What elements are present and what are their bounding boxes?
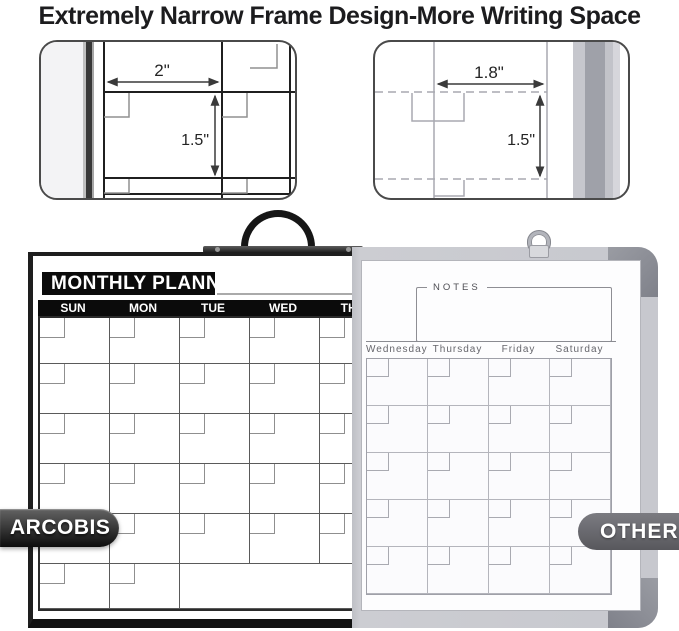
calendar-cell [40, 564, 110, 609]
date-corner-square [180, 514, 205, 534]
date-corner-square [320, 364, 345, 384]
calendar-cell [110, 564, 180, 609]
date-corner-square [489, 500, 511, 518]
date-corner-square [250, 414, 275, 434]
other-day-row: WednesdayThursdayFridaySaturday [366, 344, 610, 357]
calendar-cell [250, 514, 320, 564]
calendar-cell [428, 453, 489, 500]
date-corner-square [110, 414, 135, 434]
date-corner-square [367, 406, 389, 424]
date-corner-squares [412, 93, 464, 196]
date-corner-square [180, 414, 205, 434]
date-corner-square [40, 464, 65, 484]
date-corner-square [320, 318, 345, 338]
calendar-cell [367, 547, 428, 594]
calendar-cell [250, 464, 320, 514]
date-corner-square [110, 564, 135, 584]
handle-mount-bar [203, 246, 363, 253]
calendar-cell [180, 364, 250, 414]
date-corner-square [180, 464, 205, 484]
calendar-cell [550, 359, 611, 406]
wide-frame-band [573, 42, 620, 198]
calendar-cell [428, 359, 489, 406]
arcobis-closeup-diagram: 2" 1.5" [41, 42, 295, 198]
date-corner-square [110, 318, 135, 338]
width-dimension-label: 2" [154, 61, 170, 80]
calendar-cell [40, 364, 110, 414]
calendar-cell [428, 500, 489, 547]
calendar-cell [550, 453, 611, 500]
day-header: TUE [178, 301, 248, 315]
date-corner-square [367, 500, 389, 518]
page-title: Extremely Narrow Frame Design-More Writi… [0, 2, 679, 31]
date-corner-square [550, 500, 572, 518]
calendar-cell [489, 453, 550, 500]
calendar-cell [367, 406, 428, 453]
date-corner-square [320, 414, 345, 434]
calendar-cell [489, 406, 550, 453]
date-corner-square [40, 564, 65, 584]
day-header: Friday [488, 344, 549, 357]
date-corner-squares [104, 44, 277, 193]
day-header-line [366, 341, 616, 342]
calendar-cell [40, 464, 110, 514]
date-corner-square [250, 364, 275, 384]
date-corner-square [180, 318, 205, 338]
date-corner-square [489, 453, 511, 471]
other-board: NOTES WednesdayThursdayFridaySaturday [352, 247, 658, 628]
date-corner-square [180, 364, 205, 384]
planner-title-banner: MONTHLY PLANNER [42, 272, 215, 295]
height-dimension-label: 1.5" [181, 132, 209, 149]
calendar-cell [180, 464, 250, 514]
calendar-cell [489, 359, 550, 406]
dimension-arrows [108, 82, 218, 175]
calendar-cell [110, 318, 180, 364]
calendar-cell [428, 547, 489, 594]
calendar-cell [250, 318, 320, 364]
calendar-cell [40, 318, 110, 364]
calendar-cell [489, 500, 550, 547]
board-surface-margin [41, 42, 83, 198]
date-corner-square [550, 359, 572, 377]
date-corner-square [367, 453, 389, 471]
date-corner-square [489, 359, 511, 377]
date-corner-square [320, 514, 345, 534]
height-dimension-label: 1.5" [507, 132, 535, 149]
arcobis-day-row: SUNMONTUEWEDTHU [38, 300, 388, 316]
calendar-cell [250, 414, 320, 464]
date-corner-square [489, 547, 511, 565]
calendar-cell [40, 414, 110, 464]
calendar-grid-lines [104, 42, 295, 198]
date-corner-square [367, 359, 389, 377]
date-corner-square [110, 464, 135, 484]
date-corner-square [320, 464, 345, 484]
other-calendar-grid [366, 358, 612, 595]
calendar-cell [550, 406, 611, 453]
other-badge: OTHER [578, 513, 679, 550]
date-corner-square [40, 364, 65, 384]
other-frame-closeup: 1.8" 1.5" [373, 40, 630, 200]
calendar-cell [180, 318, 250, 364]
calendar-cell [550, 547, 611, 594]
day-header: Thursday [427, 344, 488, 357]
notes-box: NOTES [416, 287, 612, 342]
day-header: MON [108, 301, 178, 315]
narrow-frame-stripe [83, 42, 94, 198]
date-corner-square [428, 453, 450, 471]
date-corner-square [428, 500, 450, 518]
date-corner-square [40, 318, 65, 338]
other-closeup-diagram: 1.8" 1.5" [375, 42, 628, 198]
calendar-cell [367, 359, 428, 406]
day-header: WED [248, 301, 318, 315]
arcobis-board: MONTHLY PLANNER SUNMONTUEWEDTHU [28, 252, 368, 628]
calendar-cell [428, 406, 489, 453]
arcobis-frame-closeup: 2" 1.5" [39, 40, 297, 200]
calendar-cell [250, 364, 320, 414]
date-corner-square [40, 414, 65, 434]
calendar-cell [110, 514, 180, 564]
date-corner-square [250, 514, 275, 534]
calendar-cell [489, 547, 550, 594]
calendar-cell [110, 364, 180, 414]
calendar-cell [367, 453, 428, 500]
day-header: Wednesday [366, 344, 427, 357]
calendar-cell [180, 514, 250, 564]
other-board-sheet: NOTES WednesdayThursdayFridaySaturday [361, 260, 641, 611]
date-corner-square [250, 464, 275, 484]
date-corner-square [428, 547, 450, 565]
date-corner-square [250, 318, 275, 338]
date-corner-square [489, 406, 511, 424]
day-header: SUN [38, 301, 108, 315]
date-corner-square [110, 364, 135, 384]
calendar-cell [367, 500, 428, 547]
day-header: Saturday [549, 344, 610, 357]
screw-icon [346, 247, 351, 252]
ring-mount [529, 245, 549, 258]
arcobis-calendar-grid [38, 316, 392, 611]
dimension-arrows [438, 84, 543, 176]
calendar-cell [110, 464, 180, 514]
date-corner-square [550, 406, 572, 424]
notes-label: NOTES [427, 282, 487, 293]
date-corner-square [428, 406, 450, 424]
date-corner-square [428, 359, 450, 377]
date-corner-square [367, 547, 389, 565]
arcobis-badge: ARCOBIS [0, 509, 119, 547]
calendar-grid-lines [375, 42, 547, 198]
calendar-cell [180, 414, 250, 464]
calendar-cell [110, 414, 180, 464]
width-dimension-label: 1.8" [474, 63, 504, 82]
date-corner-square [550, 453, 572, 471]
screw-icon [215, 247, 220, 252]
date-corner-square [550, 547, 572, 565]
